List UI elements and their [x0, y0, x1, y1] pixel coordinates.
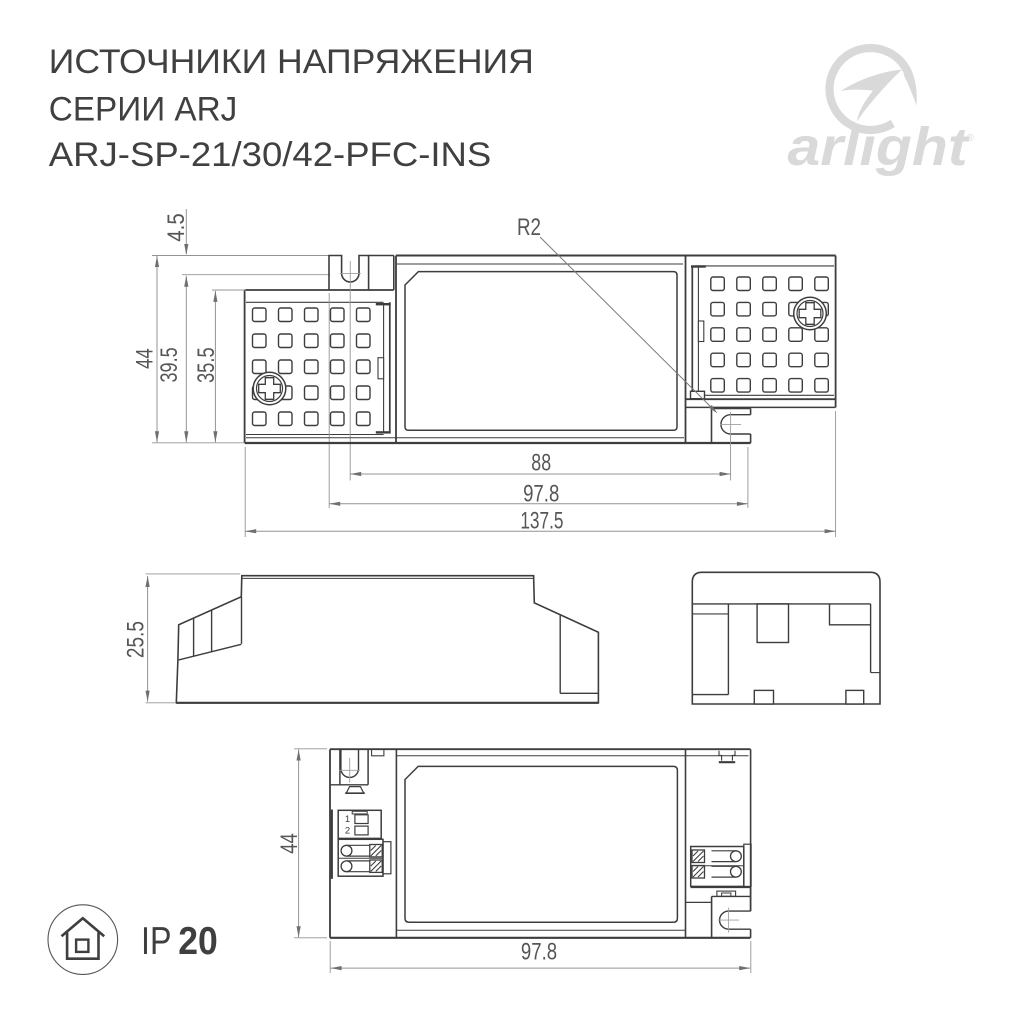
svg-text:20: 20: [178, 920, 218, 963]
svg-text:arlight: arlight: [788, 117, 970, 177]
svg-text:88: 88: [531, 449, 551, 476]
svg-text:R2: R2: [517, 214, 541, 241]
svg-text:®: ®: [967, 133, 975, 144]
svg-text:IP: IP: [141, 920, 172, 963]
svg-text:25.5: 25.5: [123, 621, 150, 658]
svg-text:2: 2: [345, 826, 350, 837]
svg-text:СЕРИИ ARJ: СЕРИИ ARJ: [49, 91, 238, 129]
svg-text:1: 1: [345, 814, 350, 825]
svg-text:ИСТОЧНИКИ НАПРЯЖЕНИЯ: ИСТОЧНИКИ НАПРЯЖЕНИЯ: [49, 43, 534, 81]
svg-text:44: 44: [276, 833, 303, 854]
svg-text:ARJ-SP-21/30/42-PFC-INS: ARJ-SP-21/30/42-PFC-INS: [49, 136, 491, 174]
svg-text:4.5: 4.5: [163, 213, 190, 242]
svg-text:35.5: 35.5: [193, 347, 220, 383]
svg-text:97.8: 97.8: [523, 481, 559, 508]
svg-text:97.8: 97.8: [521, 939, 557, 966]
svg-text:39.5: 39.5: [156, 347, 183, 382]
svg-text:44: 44: [132, 348, 159, 369]
svg-text:137.5: 137.5: [520, 507, 563, 534]
